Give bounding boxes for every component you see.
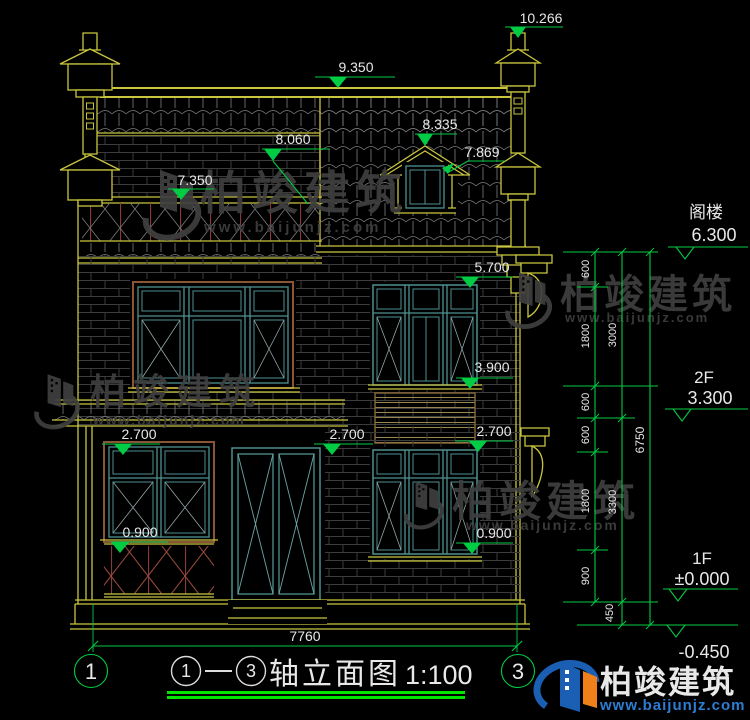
axis-left-number: 1 — [85, 659, 97, 684]
logo-building-orange — [583, 671, 597, 708]
logo-window-dot — [565, 670, 569, 674]
marker-2700-right: 2.700 — [476, 423, 511, 439]
pillar-left-base2 — [78, 200, 102, 206]
axis-right-number: 3 — [512, 659, 524, 684]
pillar-right-neck — [511, 92, 525, 153]
marker-9350: 9.350 — [338, 59, 373, 75]
pillar-right-body1 — [501, 63, 535, 86]
marker-3900: 3.900 — [474, 359, 509, 375]
base-plinth — [70, 600, 530, 629]
w3-railing-bottom — [104, 594, 214, 597]
marker-0900-left: 0.900 — [122, 524, 157, 540]
drawing-scale: 1:100 — [405, 660, 473, 690]
f1-level-mark — [663, 589, 738, 601]
dim-value: 600 — [580, 393, 592, 411]
title-block: 1 3 轴立面图 1:100 — [167, 657, 473, 700]
ridge-lines — [100, 88, 515, 97]
marker-2700-left: 2.700 — [121, 426, 156, 442]
w3-fill — [101, 439, 217, 543]
pillar-left-body2 — [68, 170, 112, 200]
watermark-url: www.baijunjz.com — [203, 219, 381, 236]
f2-level-mark — [665, 409, 748, 421]
porch-post — [86, 426, 92, 600]
watermark-left: 柏竣建筑 www.baijunjz.com — [36, 371, 262, 428]
title-axis-from: 1 — [181, 661, 191, 681]
pillar-left-roof1 — [60, 49, 120, 64]
corbel-lower — [521, 428, 549, 446]
logo-brand-text: 柏竣建筑 — [600, 664, 736, 700]
brand-logo: 柏竣建筑 www.baijunjz.com — [537, 662, 746, 714]
watermark-brand: 柏竣建筑 — [90, 371, 262, 412]
window-1f-left — [100, 439, 218, 597]
drawing-canvas: 柏竣建筑 www.baijunjz.com 柏竣建筑 www.baijunjz.… — [0, 0, 750, 720]
pillar-right-base1 — [507, 86, 529, 92]
f2-label: 2F — [694, 368, 714, 387]
pillar-left-body1 — [68, 64, 112, 90]
title-underline-2 — [167, 696, 465, 699]
marker-8060: 8.060 — [275, 131, 310, 147]
cad-elevation-drawing: 柏竣建筑 www.baijunjz.com 柏竣建筑 www.baijunjz.… — [0, 0, 750, 720]
pillar-left-finial — [79, 33, 101, 50]
attic-label: 阁楼 — [689, 203, 723, 222]
ornament-pillar-right — [496, 33, 540, 293]
f1-value: ±0.000 — [675, 569, 730, 589]
pillar-left-base1 — [76, 90, 104, 97]
pillar-right-base2 — [508, 194, 528, 200]
logo-window-dot — [565, 678, 569, 682]
pillar-right-neck2 — [511, 200, 525, 247]
title-underline-1 — [167, 691, 465, 694]
w3-railing — [104, 546, 214, 594]
logo-window-dot — [565, 686, 569, 690]
pillar-left-neck — [83, 97, 97, 154]
pillar-right-roof1 — [496, 49, 540, 63]
dim-value: 1800 — [580, 324, 592, 348]
attic-value: 6.300 — [691, 225, 736, 245]
door-frame — [232, 448, 320, 600]
marker-10266: 10.266 — [520, 10, 563, 26]
drawing-title: 轴立面图 — [269, 658, 401, 691]
dim-value: 600 — [580, 260, 592, 278]
w2-frame — [373, 285, 477, 385]
total-width-dim: 7760 — [289, 628, 320, 644]
pillar-right-body2 — [501, 167, 535, 194]
marker-5700: 5.700 — [474, 259, 509, 275]
window-2f-right — [368, 282, 482, 443]
logo-url-text: www.baijunjz.com — [599, 697, 745, 714]
corbel-upper — [516, 255, 552, 273]
dim-value: 600 — [580, 426, 592, 444]
marker-0900-right: 0.900 — [476, 525, 511, 541]
balcony-tile-strip — [82, 243, 322, 257]
watermark-brand: 柏竣建筑 — [200, 167, 408, 219]
total-height-dim: 6750 — [633, 426, 647, 453]
base-level-mark — [650, 625, 738, 637]
title-axis-to: 3 — [246, 661, 256, 681]
marker-2700-center: 2.700 — [329, 426, 364, 442]
watermark-url: www.baijunjz.com — [92, 412, 246, 428]
base-value: -0.450 — [678, 642, 729, 662]
f1-label: 1F — [692, 549, 712, 568]
f2-value: 3.300 — [687, 388, 732, 408]
dim-value: 3000 — [607, 323, 619, 347]
steps-fill — [228, 600, 327, 624]
dim-value: 3300 — [607, 490, 619, 514]
chain-b-values: 3000 3300 450 — [604, 323, 619, 622]
dim-value: 1800 — [580, 489, 592, 513]
right-eave — [316, 246, 526, 252]
logo-building-blue — [560, 662, 580, 712]
dim-value: 900 — [580, 567, 592, 585]
level-markers: 阁楼 6.300 2F 3.300 1F ±0.000 -0.450 — [650, 203, 748, 662]
marker-7869: 7.869 — [464, 144, 499, 160]
watermark-url: www.baijunjz.com — [564, 310, 709, 325]
attic-level-mark — [668, 247, 748, 259]
entry-door — [229, 445, 323, 603]
marker-8335: 8.335 — [422, 116, 457, 132]
dim-value: 450 — [604, 604, 616, 622]
marker-7350: 7.350 — [177, 172, 212, 188]
